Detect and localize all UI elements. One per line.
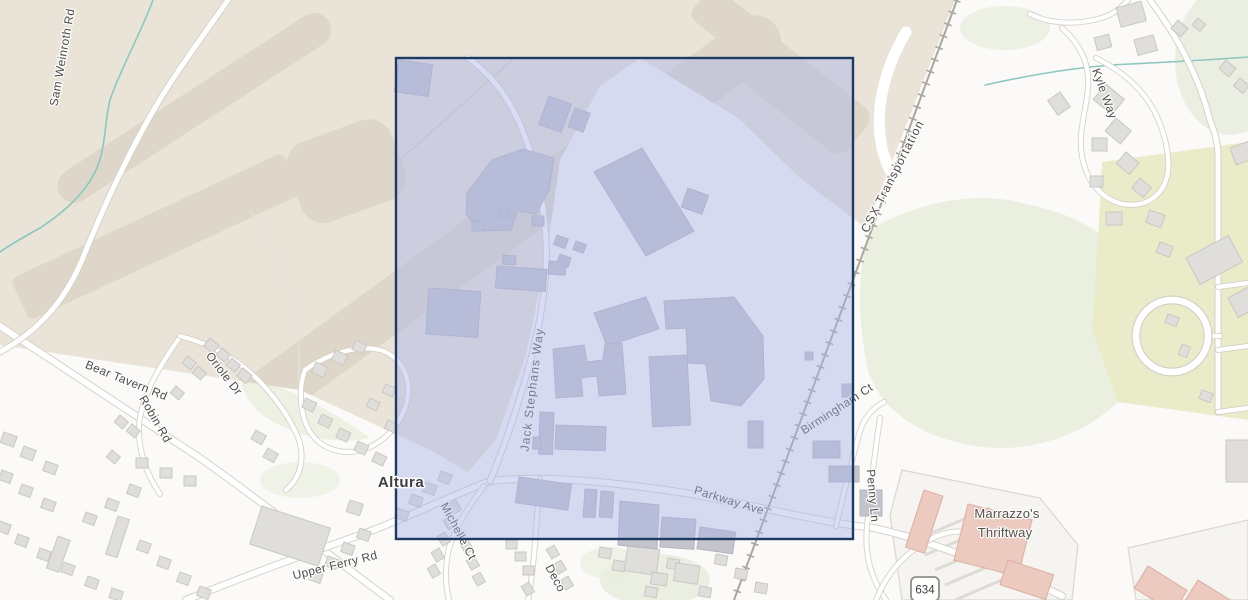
building <box>1106 212 1122 225</box>
place-label-altura: Altura <box>378 474 424 491</box>
building <box>673 563 699 584</box>
building <box>523 566 534 575</box>
building <box>754 582 768 594</box>
poi-label-marrazzos-line2: Thriftway <box>978 525 1033 540</box>
building <box>1092 138 1107 151</box>
building <box>650 572 668 586</box>
route-shield-number: 634 <box>915 585 935 597</box>
building <box>506 540 517 549</box>
building <box>714 554 728 566</box>
map-canvas[interactable]: Sam Weinroth Rd Bear Tavern Rd Robin Rd … <box>0 0 1248 600</box>
building <box>515 552 526 561</box>
building <box>160 468 172 478</box>
building <box>644 586 658 598</box>
building <box>612 560 626 572</box>
development-area <box>1092 142 1248 420</box>
building <box>136 458 148 468</box>
route-shield-634: 634 <box>911 577 939 600</box>
building <box>624 545 659 575</box>
building <box>1090 176 1103 187</box>
green-patch <box>960 6 1050 50</box>
building <box>184 476 196 486</box>
building <box>734 568 748 580</box>
building <box>1226 440 1248 482</box>
building <box>698 586 712 598</box>
poi-label-marrazzos-line1: Marrazzo's <box>974 506 1039 521</box>
selection-rectangle[interactable] <box>396 58 853 539</box>
building <box>598 547 612 559</box>
